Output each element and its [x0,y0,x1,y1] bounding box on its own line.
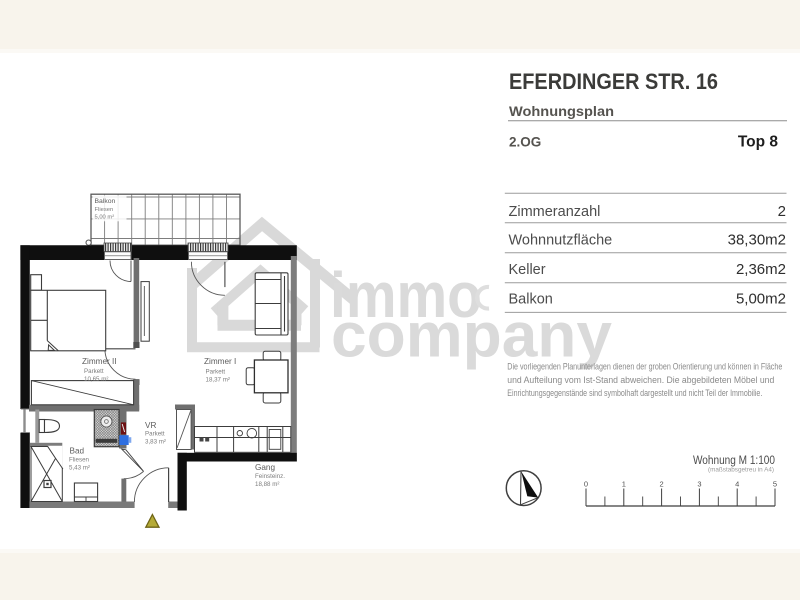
svg-text:Zimmer I: Zimmer I [204,357,236,366]
svg-text:Balkon: Balkon [95,198,116,205]
svg-text:Wohnungsplan: Wohnungsplan [509,103,614,119]
svg-text:18,37 m²: 18,37 m² [206,377,230,384]
svg-text:Zimmer II: Zimmer II [82,357,117,366]
svg-text:Parkett: Parkett [145,431,165,438]
svg-text:Parkett: Parkett [206,369,226,376]
svg-text:Keller: Keller [509,262,546,278]
svg-text:company: company [331,301,612,371]
svg-text:Die vorliegenden Planunterlage: Die vorliegenden Planunterlagen dienen d… [507,362,782,372]
svg-text:Balkon: Balkon [509,292,553,308]
svg-text:10,65 m²: 10,65 m² [84,376,108,383]
svg-text:5,00 m²: 5,00 m² [95,215,115,221]
svg-text:2: 2 [778,203,786,220]
svg-text:18,88 m²: 18,88 m² [255,481,279,488]
svg-text:VR: VR [145,421,156,430]
svg-text:2,36m2: 2,36m2 [736,261,786,278]
svg-text:3,83 m²: 3,83 m² [145,439,166,446]
svg-text:5,00m2: 5,00m2 [736,291,786,308]
svg-text:2.OG: 2.OG [509,135,541,150]
svg-text:Top 8: Top 8 [738,134,779,151]
svg-text:Parkett: Parkett [84,368,104,375]
svg-text:5: 5 [773,480,777,489]
svg-text:5,43 m²: 5,43 m² [69,465,90,472]
svg-text:Wohnnutzfläche: Wohnnutzfläche [509,232,613,248]
svg-text:4: 4 [735,480,739,489]
svg-text:0: 0 [584,480,588,489]
svg-text:Gang: Gang [255,463,275,472]
svg-text:Feinsteinz.: Feinsteinz. [255,473,285,480]
svg-text:Fliesen: Fliesen [95,207,114,213]
svg-text:1: 1 [622,480,626,489]
svg-text:Einrichtungsgegenstände sind s: Einrichtungsgegenstände sind symbolhaft … [507,388,762,398]
svg-text:38,30m2: 38,30m2 [728,231,786,248]
svg-text:2: 2 [660,480,664,489]
svg-text:Bad: Bad [70,447,85,456]
svg-text:und Aufteilung vom Ist-Stand a: und Aufteilung vom Ist-Stand abweichen. … [507,375,774,385]
svg-text:Fliesen: Fliesen [69,457,90,464]
svg-text:(maßstabsgetreu in A4): (maßstabsgetreu in A4) [708,466,774,473]
svg-text:EFERDINGER STR. 16: EFERDINGER STR. 16 [509,69,718,94]
svg-text:Wohnung M 1:100: Wohnung M 1:100 [693,453,775,467]
svg-text:3: 3 [697,480,701,489]
svg-text:Zimmeranzahl: Zimmeranzahl [509,204,601,220]
